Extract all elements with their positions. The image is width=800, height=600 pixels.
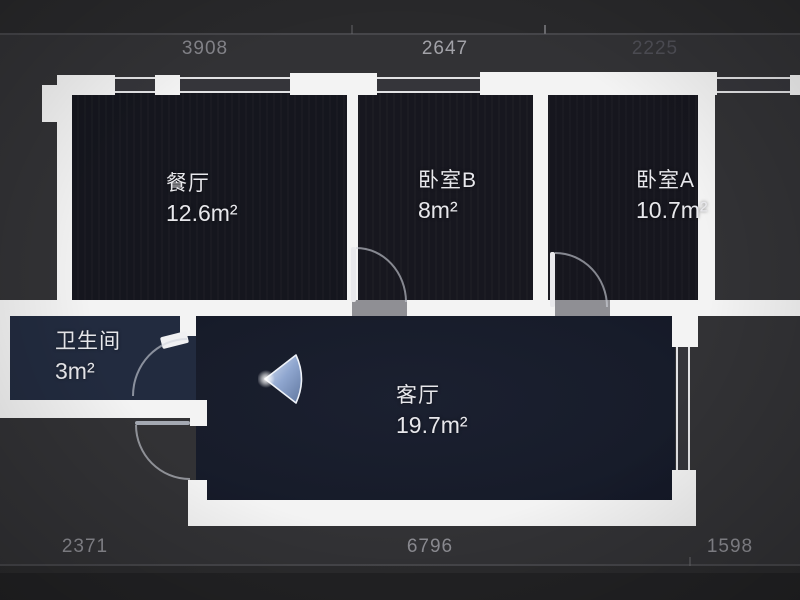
- room-name: 卧室A: [636, 167, 708, 195]
- wall: [407, 300, 555, 316]
- dimension-tick-bottom: [689, 557, 691, 566]
- wall: [672, 470, 696, 526]
- dimension-label-top-middle: 2647: [390, 38, 500, 60]
- wall: [290, 73, 377, 95]
- background-top-band: [0, 0, 800, 34]
- floorplan-canvas: 餐厅 12.6m² 卧室B 8m² 卧室A 10.7m² 卫生间 3m² 客厅 …: [0, 0, 800, 600]
- room-area: 12.6m²: [166, 198, 238, 228]
- dimension-label-top-right: 2225: [600, 38, 710, 60]
- wall: [57, 95, 72, 305]
- window: [377, 77, 480, 93]
- room-label-bedroom-b: 卧室B 8m²: [418, 167, 477, 225]
- room-area: 10.7m²: [636, 195, 708, 225]
- window: [676, 347, 690, 470]
- door-threshold-bedroom-b: [352, 300, 407, 316]
- dimension-tick-top: [351, 25, 353, 34]
- room-area: 19.7m²: [396, 410, 468, 440]
- room-area: 3m²: [55, 356, 121, 386]
- window: [115, 77, 155, 93]
- door-arc-entrance: [135, 425, 190, 480]
- room-label-bedroom-a: 卧室A 10.7m²: [636, 167, 708, 225]
- background-bottom-strip: [0, 566, 800, 573]
- wall: [480, 72, 717, 95]
- room-label-dining: 餐厅 12.6m²: [166, 170, 238, 228]
- wall: [610, 300, 800, 316]
- wall: [533, 72, 548, 305]
- room-name: 餐厅: [166, 170, 238, 198]
- panorama-viewpoint-icon[interactable]: [258, 350, 310, 410]
- dimension-label-bottom-middle: 6796: [375, 536, 485, 558]
- wall: [155, 75, 180, 95]
- dimension-label-bottom-left: 2371: [30, 536, 140, 558]
- wall: [672, 300, 698, 347]
- dimension-label-bottom-right: 1598: [675, 536, 785, 558]
- room-name: 卧室B: [418, 167, 477, 195]
- room-name: 卫生间: [55, 328, 121, 356]
- wall: [190, 416, 207, 426]
- room-name: 客厅: [396, 382, 468, 410]
- room-label-bathroom: 卫生间 3m²: [55, 328, 121, 386]
- dimension-label-top-left: 3908: [150, 38, 260, 60]
- background-bottom-band: [0, 573, 800, 600]
- dimension-tick-top: [544, 25, 546, 34]
- wall: [0, 400, 207, 418]
- dimension-line-top: [0, 33, 800, 35]
- window: [180, 77, 290, 93]
- room-area: 8m²: [418, 195, 477, 225]
- wall: [188, 500, 695, 526]
- wall: [0, 300, 352, 316]
- wall: [790, 75, 800, 95]
- window: [717, 77, 790, 93]
- room-label-living: 客厅 19.7m²: [396, 382, 468, 440]
